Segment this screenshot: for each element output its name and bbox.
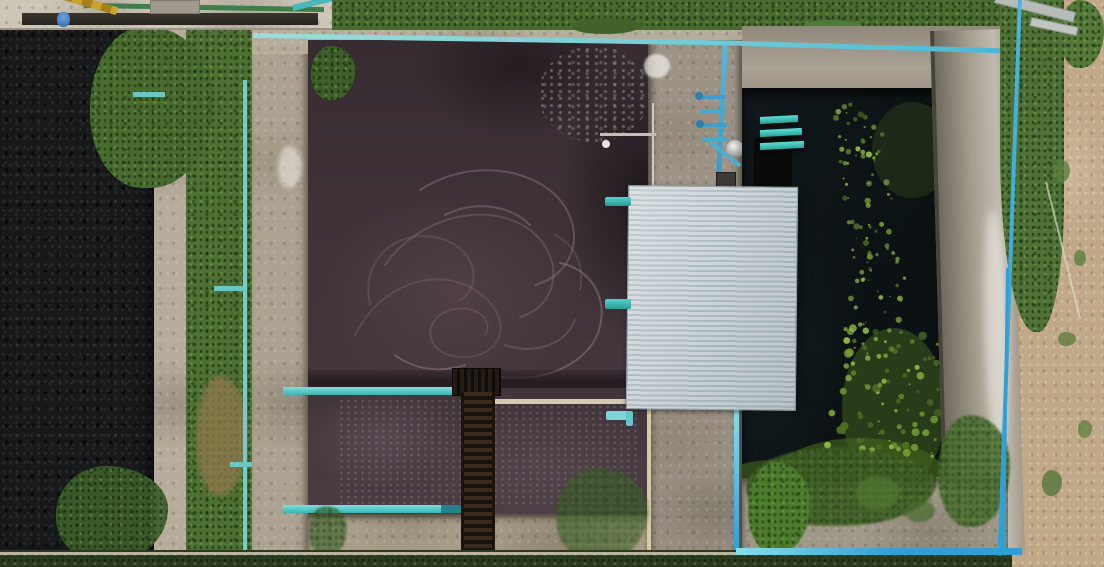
gauge-disc bbox=[602, 140, 610, 148]
pole-crossbar bbox=[600, 133, 656, 136]
tan-pipe-vertical bbox=[647, 404, 651, 556]
manifold-branch bbox=[702, 137, 728, 141]
teal-elbow-bend bbox=[626, 411, 633, 426]
valve-handle bbox=[696, 120, 704, 128]
walkway-pad bbox=[648, 405, 742, 557]
pipe-stub bbox=[214, 286, 244, 291]
foam-swirl-pattern bbox=[325, 145, 640, 390]
roof-edge-pipe-stub bbox=[605, 299, 631, 309]
catwalk-ladder bbox=[461, 392, 495, 564]
pump-unit bbox=[150, 0, 200, 14]
pipe-stub bbox=[230, 462, 252, 467]
aerial-photo-wastewater-plant bbox=[0, 0, 1104, 567]
bottom-blue-pipe bbox=[736, 548, 1022, 555]
bottom-conduit bbox=[0, 552, 742, 555]
valve-handle bbox=[695, 92, 703, 100]
roof-edge-pipe-stub bbox=[605, 197, 631, 206]
grass-strip-pipe bbox=[243, 80, 247, 558]
manifold-branch bbox=[701, 123, 727, 127]
green-pipe bbox=[84, 3, 324, 12]
paint-mark bbox=[278, 146, 302, 188]
foam-specks bbox=[538, 46, 650, 142]
corrugated-roof bbox=[626, 185, 798, 411]
pipe-stub bbox=[133, 92, 165, 97]
worker-figure bbox=[57, 12, 70, 27]
aeration-basin-upper bbox=[308, 40, 648, 388]
inlet-channel bbox=[0, 0, 338, 30]
manifold-branch bbox=[700, 109, 726, 113]
dirt-patch bbox=[196, 376, 248, 496]
roof-drain-pipe bbox=[734, 405, 739, 552]
gauge-pole bbox=[652, 103, 654, 191]
west-wall bbox=[252, 26, 310, 567]
grass-overhang-corner bbox=[311, 46, 355, 100]
